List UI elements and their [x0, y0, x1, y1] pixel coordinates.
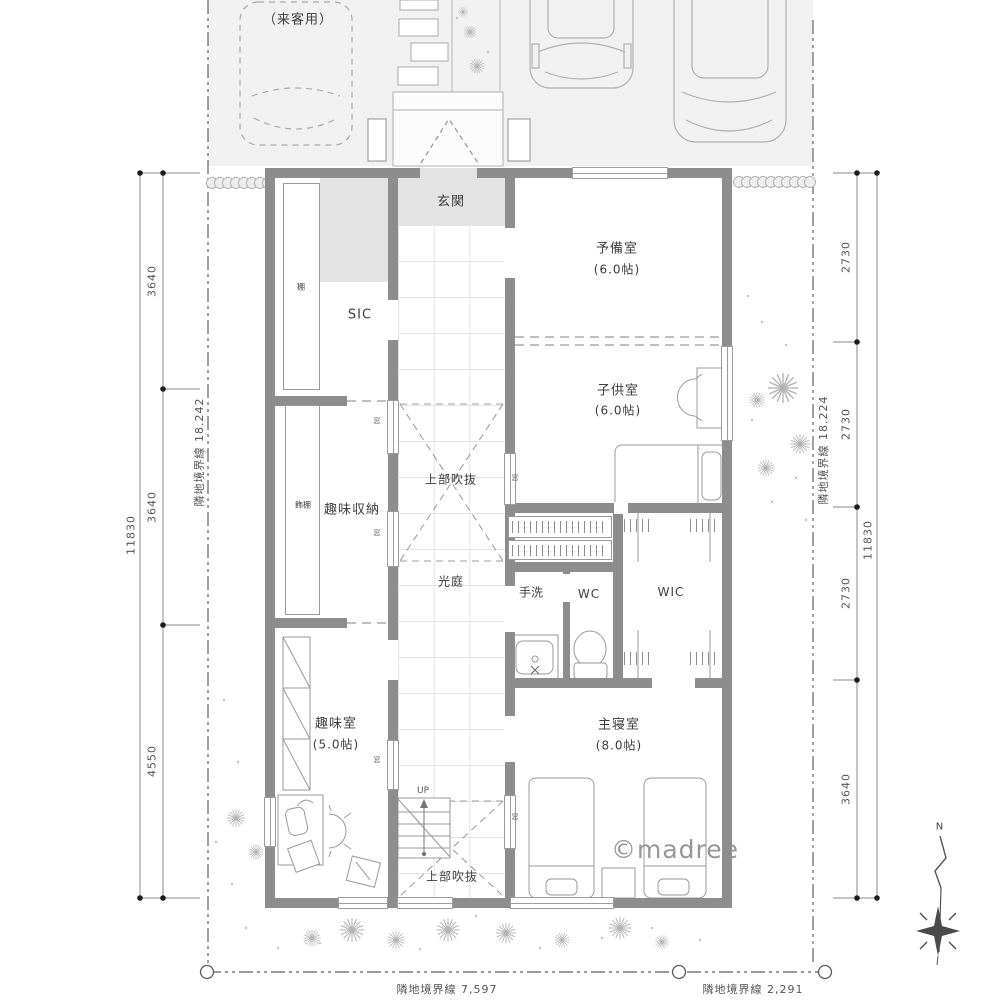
hobby-desk	[278, 795, 323, 865]
window-tag: 窓	[374, 416, 381, 426]
dim-left-seg-2: 3640	[146, 491, 159, 523]
room-size-hobby: (5.0帖)	[313, 736, 359, 753]
label-light-court: 光庭	[438, 573, 464, 590]
room-label-hobby-storage: 趣味収納	[324, 499, 380, 518]
dim-left-seg-1: 3640	[146, 265, 159, 297]
closet-hanger-ticks	[512, 545, 608, 556]
window-tag: 窓	[374, 755, 381, 765]
nightstand	[602, 868, 635, 898]
window	[387, 400, 399, 454]
wash-basin	[510, 635, 558, 680]
label-display-shelf: 飾棚	[295, 500, 311, 511]
window	[721, 346, 733, 441]
compass-north-label: N	[936, 822, 944, 833]
dim-right-seg-2: 2730	[840, 408, 853, 440]
door-opening	[504, 228, 516, 278]
boundary-label-right: 隣地境界線 18.224	[815, 396, 831, 505]
closet-hanger-ticks	[512, 521, 608, 533]
kids-bed	[615, 445, 727, 508]
wic-hanger-ticks	[690, 652, 720, 665]
door-opening	[562, 574, 571, 602]
wic-hanger-ticks	[624, 519, 654, 532]
compass	[916, 836, 960, 965]
door-opening	[614, 502, 628, 514]
room-size-master: (8.0帖)	[596, 737, 642, 754]
wall-right	[722, 168, 732, 908]
room-label-hand-wash: 手洗	[519, 584, 543, 601]
window-tag: 窓	[374, 528, 381, 538]
entrance-step	[420, 168, 477, 178]
wall-wic-left	[613, 513, 623, 688]
room-size-kids: (6.0帖)	[595, 402, 641, 419]
boundary-label-bottom-side: 隣地境界線 2,291	[703, 981, 804, 997]
room-label-master: 主寝室	[598, 714, 640, 733]
boundary-label-bottom-front: 隣地境界線 7,597	[397, 981, 498, 997]
watermark: ©madree	[611, 835, 739, 864]
room-label-kids: 子供室	[597, 380, 639, 399]
dim-right-seg-3: 2730	[840, 577, 853, 609]
label-void-bottom: 上部吹抜	[426, 868, 478, 885]
hedge-right	[734, 177, 816, 188]
boundary-corner-markers	[201, 966, 832, 979]
floor-plan-canvas: 玄関 SIC 棚 飾棚 趣味収納 趣味室 (5.0帖) 上部吹抜 光庭 予備室 …	[0, 0, 1000, 1000]
boundary-label-left: 隣地境界線 18.242	[191, 398, 207, 507]
room-label-sic: SIC	[348, 308, 372, 323]
window	[387, 511, 399, 567]
room-label-wc: WC	[578, 587, 600, 601]
room-label-hobby: 趣味室	[315, 713, 357, 732]
window-tag: 窓	[512, 473, 519, 483]
wall-corridor-right	[505, 178, 515, 898]
wall-bath-bottom	[505, 678, 732, 688]
toilet	[574, 631, 607, 679]
entrance-floor	[320, 178, 388, 282]
wall-entrance-divider	[388, 178, 398, 228]
label-void-top: 上部吹抜	[425, 471, 477, 488]
window	[510, 897, 614, 909]
label-stairs-up: UP	[417, 786, 429, 796]
room-label-spare: 予備室	[596, 238, 638, 257]
wall-storage-bottom	[275, 618, 347, 628]
door-opening	[652, 677, 695, 689]
label-visitor-parking: （来客用）	[263, 9, 333, 28]
door-opening	[388, 640, 398, 680]
window	[264, 797, 276, 847]
window	[387, 740, 399, 790]
dim-right-seg-1: 2730	[840, 241, 853, 273]
door-opening	[388, 300, 398, 340]
hobby-shelves	[283, 637, 310, 790]
window	[504, 795, 516, 849]
dim-right-seg-4: 3640	[840, 773, 853, 805]
kids-desk-chair	[678, 374, 702, 421]
dim-left-seg-3: 4550	[146, 745, 159, 777]
window	[338, 897, 388, 909]
door-opening	[504, 586, 516, 632]
room-label-entrance: 玄関	[437, 191, 465, 210]
room-size-spare: (6.0帖)	[594, 261, 640, 278]
room-label-wic: WIC	[658, 585, 685, 599]
wic-hanger-ticks	[624, 652, 654, 665]
window	[572, 167, 668, 179]
label-shelf: 棚	[297, 282, 305, 293]
master-bed-1	[529, 778, 594, 898]
hobby-chair	[329, 805, 351, 857]
window	[397, 897, 453, 909]
corridor-tiles	[398, 225, 505, 898]
dim-left-total: 11830	[125, 515, 138, 555]
wall-closet-bottom	[505, 562, 615, 572]
dim-right-total: 11830	[862, 520, 875, 560]
window-tag: 窓	[512, 812, 519, 822]
hedge-left	[207, 178, 274, 189]
door-opening	[504, 716, 516, 762]
floor-cushions	[288, 840, 381, 887]
wall-bottom	[265, 898, 732, 908]
wic-hanger-ticks	[690, 519, 720, 532]
